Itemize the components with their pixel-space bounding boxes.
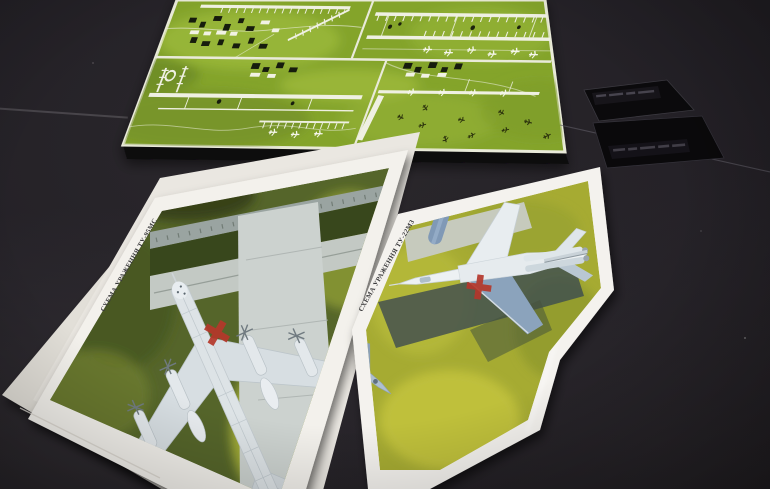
photo-scene: СХЕМА УРАЖЕННЯ ТУ-95МС bbox=[0, 0, 770, 489]
plaque-top bbox=[584, 80, 694, 121]
airfield-map-board bbox=[80, 0, 600, 164]
plaque-bottom bbox=[593, 116, 724, 168]
